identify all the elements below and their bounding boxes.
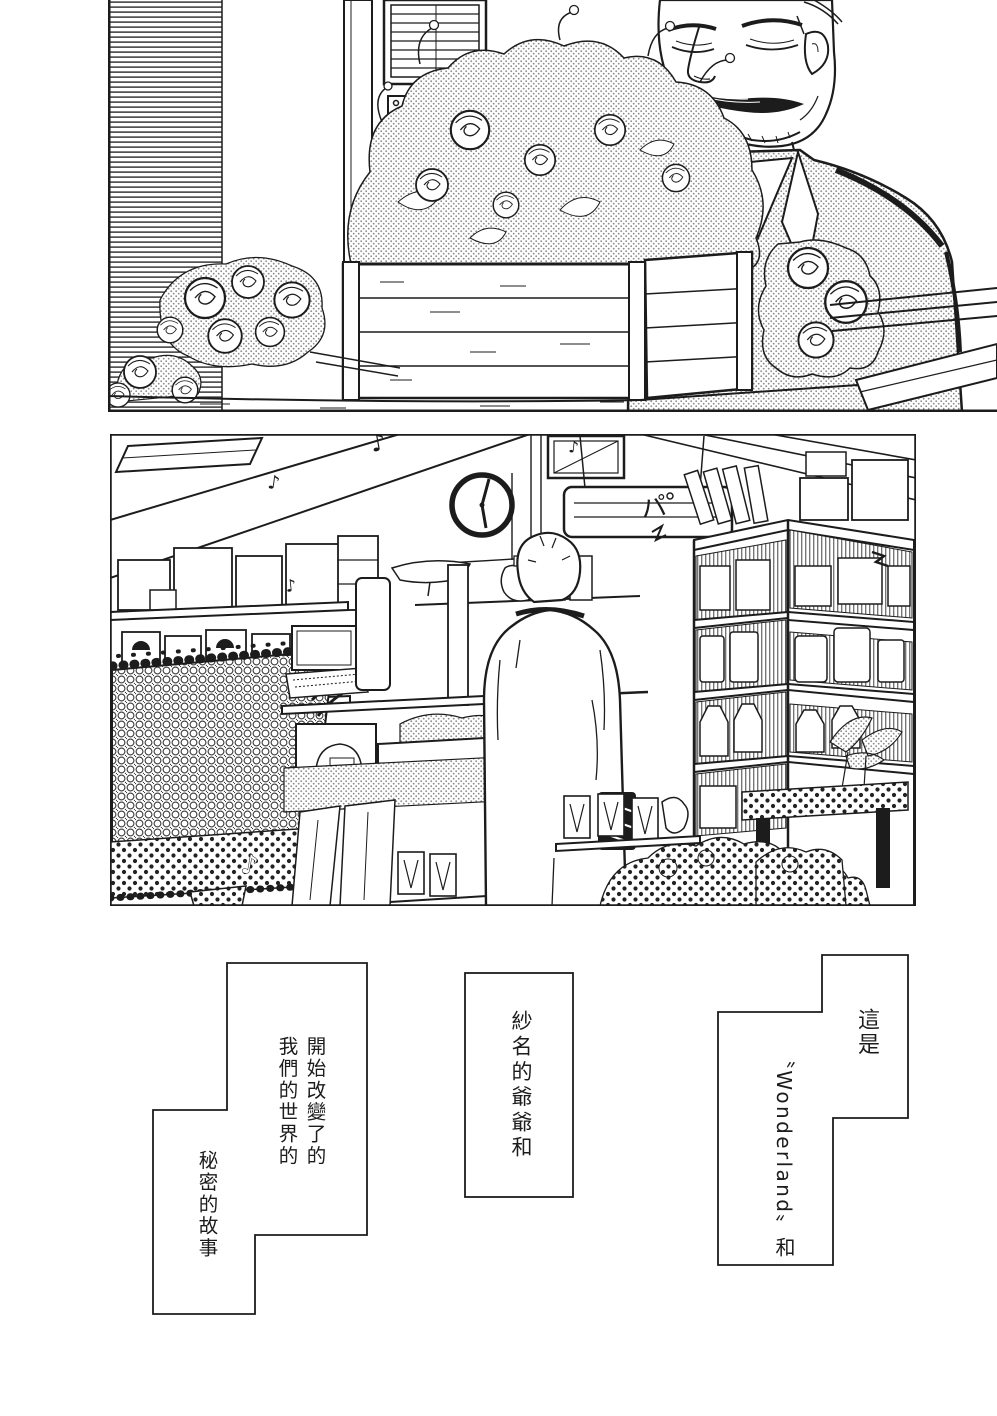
caption-middle-line-1: 紗名的爺爺和: [506, 1010, 536, 1161]
manga-page: ♪ ♪ ♪ ♪ ♪ パ 這是 〝Wonderland〟和 紗名的爺爺和 開始改變…: [0, 0, 997, 1416]
person-head: [517, 533, 580, 602]
caption-right-line-1: 這是: [850, 1008, 882, 1057]
caption-box-right: [718, 955, 908, 1265]
wall-clock: [452, 475, 512, 535]
wooden-planter-box: [343, 252, 752, 400]
panel-2: ♪ ♪ ♪ ♪ ♪ パ: [110, 428, 916, 906]
caption-box-left: [153, 963, 367, 1314]
tall-canister: [356, 578, 390, 690]
bottle: [700, 706, 728, 756]
music-note-icon: ♪: [284, 576, 297, 597]
caption-right-line-2: 〝Wonderland〟和: [770, 1048, 799, 1259]
panel-1: [106, 0, 997, 412]
music-note-icon: ♪: [568, 437, 580, 457]
person-jacket: [484, 610, 626, 906]
caption-left-line-1: 開始改變了的: [300, 1036, 329, 1167]
manga-art: ♪ ♪ ♪ ♪ ♪ パ: [0, 0, 997, 1416]
sfx-pa: パ: [639, 492, 669, 525]
caption-left-line-3: 秘密的故事: [192, 1150, 221, 1259]
bottle: [734, 704, 762, 752]
bottle: [796, 710, 824, 752]
ceiling-vent: [548, 436, 624, 478]
caption-left-line-2: 我們的世界的: [272, 1036, 301, 1167]
